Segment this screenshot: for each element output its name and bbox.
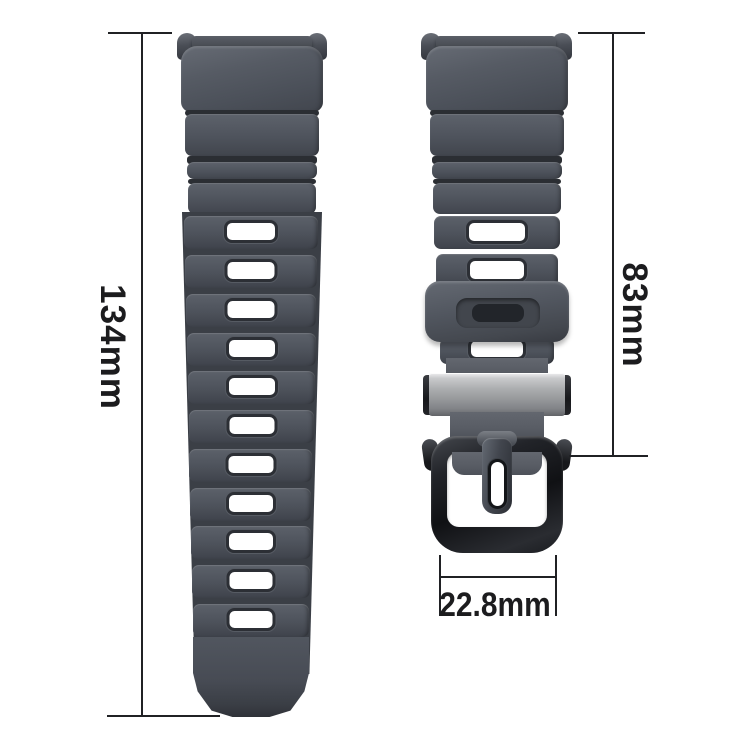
strap-segment [192,565,310,598]
strap-segment [191,526,311,559]
strap-ridge [188,183,316,214]
dimension-tick-83mm-top [578,32,645,34]
strap-segment [184,216,318,249]
strap-ridge [185,114,319,156]
dimension-label-22-8mm: 22.8mm [407,585,583,625]
adjustment-hole [230,572,273,589]
dimension-line-134mm [141,33,143,717]
product-dimension-diagram: 134mm 83mm 22.8mm [0,0,750,750]
strap-slot [469,223,525,241]
keeper-loop-hole [472,304,524,322]
adjustment-hole [229,495,273,512]
dimension-line-22-8mm [440,576,556,578]
strap-crown [181,46,323,112]
strap-ridge [433,183,561,214]
keeper-loop [425,281,569,342]
strap-segment [187,333,316,366]
strap-tip [193,637,309,717]
strap-ridge [187,162,317,179]
strap-segment [189,410,314,443]
strap-ridge [430,114,564,156]
buckle-prong-slot [491,462,504,506]
adjustment-hole [228,262,275,279]
slider-bar [429,373,565,416]
adjustment-hole [229,533,273,550]
adjustment-hole [229,378,275,395]
dimension-tick-134mm-bottom [107,715,220,717]
strap-slot [470,261,524,279]
adjustment-hole [230,611,273,628]
dimension-label-83mm: 83mm [614,215,654,415]
strap-segment [189,449,312,482]
adjustment-hole [227,223,275,240]
strap-crown [426,46,568,112]
strap-segment [193,604,309,637]
strap-segment [188,371,315,404]
adjustment-hole [229,417,274,434]
strap-segment [190,488,311,521]
dimension-label-134mm: 134mm [92,247,132,447]
strap-segment [434,216,560,249]
dimension-tick-83mm-bottom [569,455,648,457]
adjustment-hole [229,340,275,357]
adjustment-hole [228,301,275,318]
strap-segment [185,255,317,288]
strap-slot [471,341,523,357]
strap-segment [186,294,316,327]
strap-ridge [432,162,562,179]
adjustment-hole [228,456,273,473]
dimension-tick-134mm-top [108,32,172,34]
